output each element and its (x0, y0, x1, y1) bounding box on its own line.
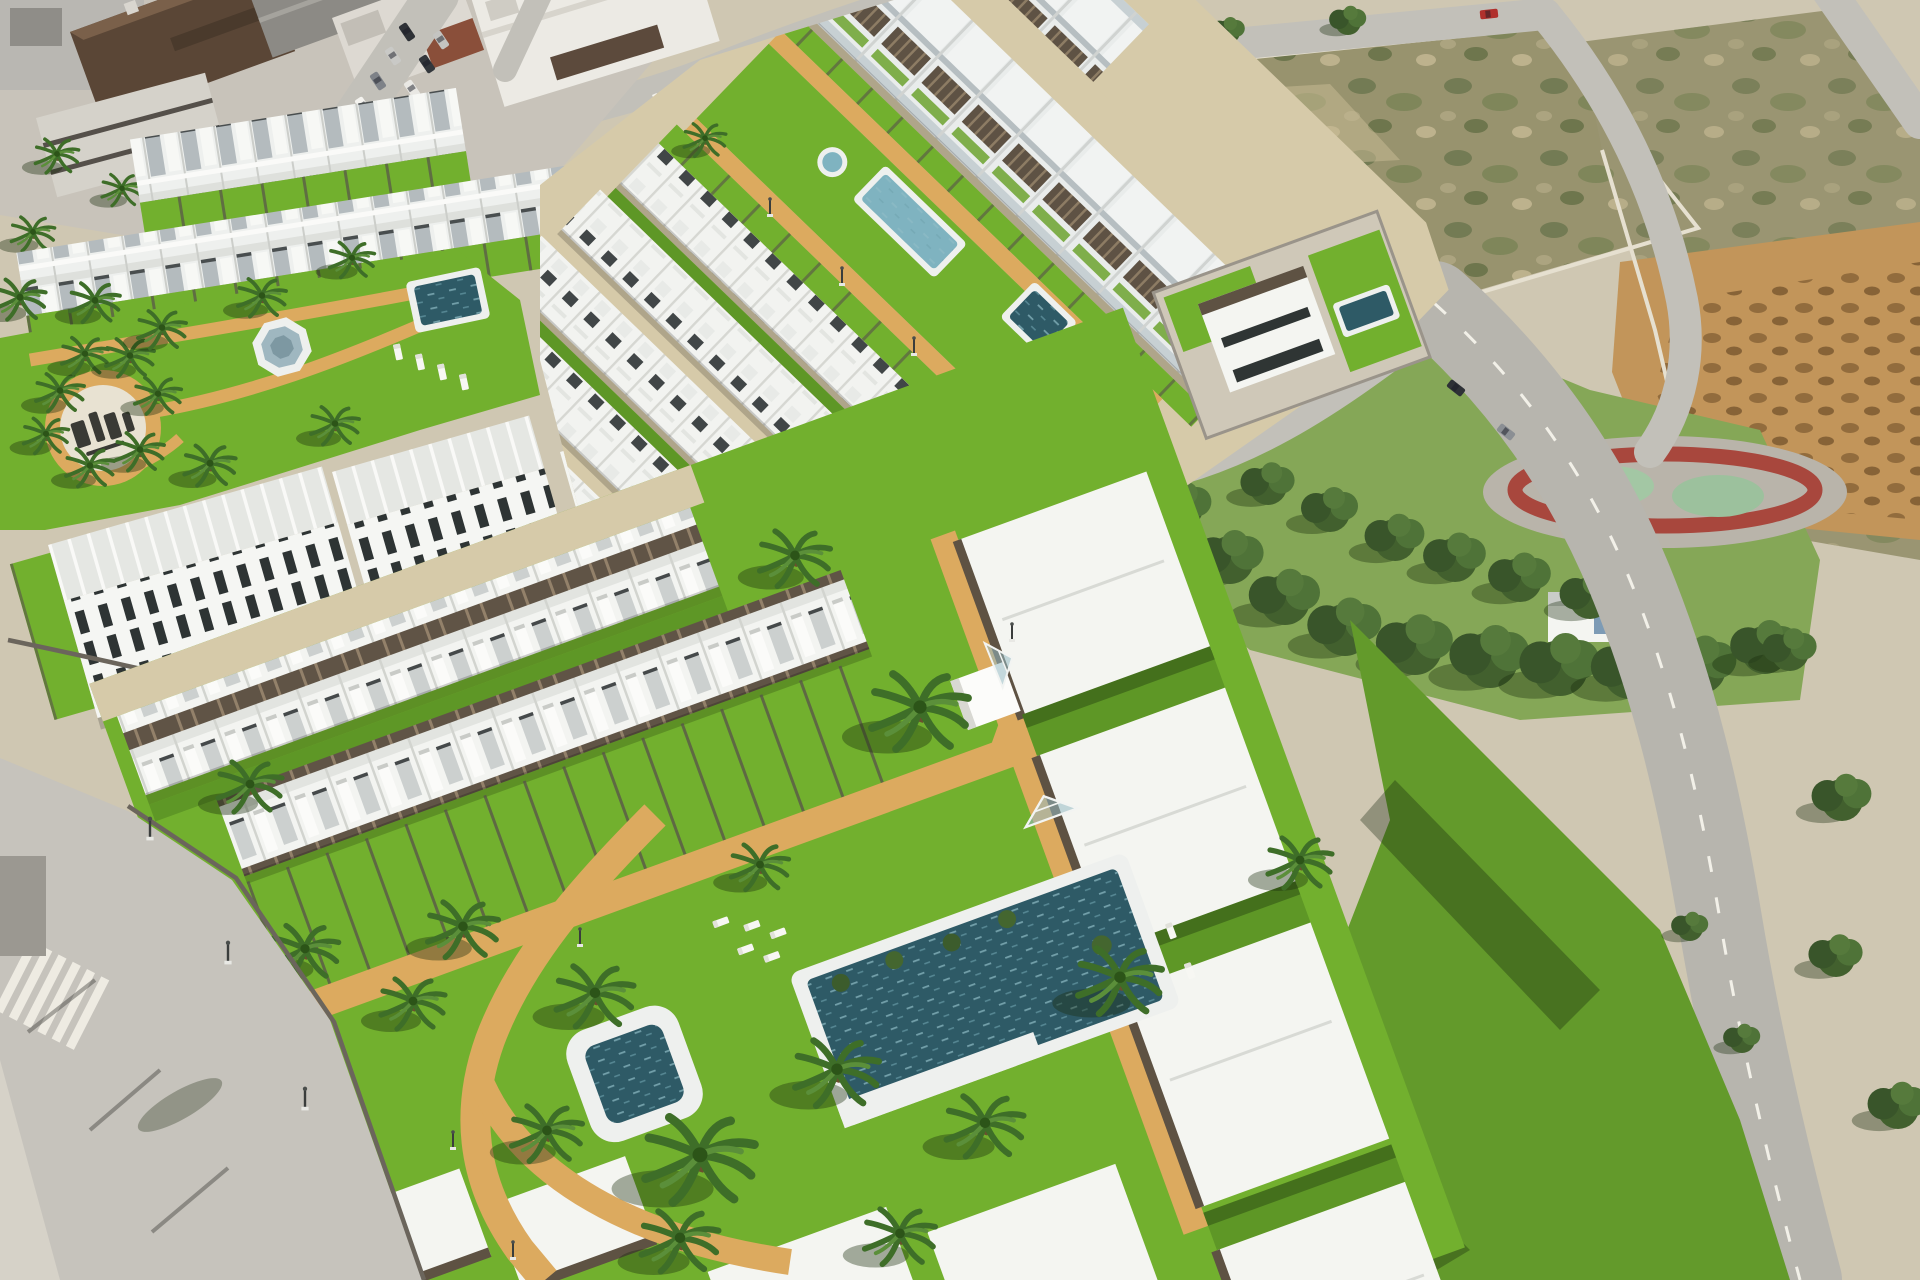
old-flat-roof-item (10, 8, 62, 46)
corner-building (0, 856, 46, 956)
scene-canvas (0, 0, 1920, 1280)
aerial-render-scene (0, 0, 1920, 1280)
playground-green-2 (1672, 475, 1764, 517)
car-red (1480, 9, 1499, 20)
